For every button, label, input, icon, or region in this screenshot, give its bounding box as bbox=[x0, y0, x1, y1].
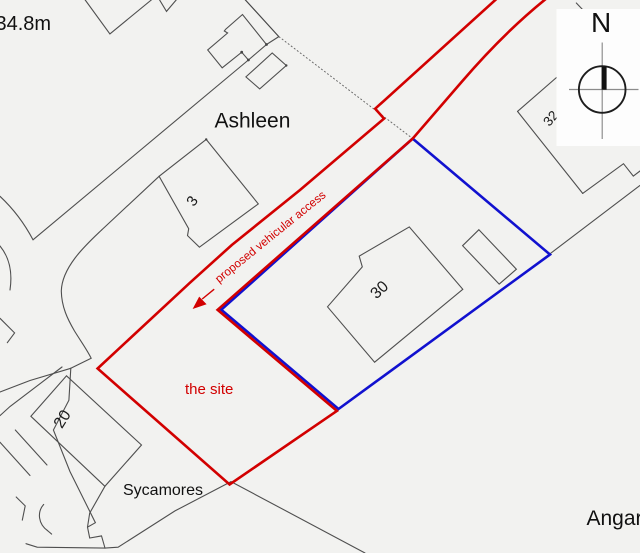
svg-text:Sycamores: Sycamores bbox=[123, 482, 203, 499]
svg-text:N: N bbox=[591, 7, 611, 38]
svg-text:34.8m: 34.8m bbox=[0, 13, 51, 35]
svg-text:Angarrack: Angarrack bbox=[587, 507, 640, 530]
svg-text:the site: the site bbox=[185, 381, 233, 398]
svg-text:Ashleen: Ashleen bbox=[215, 110, 291, 133]
